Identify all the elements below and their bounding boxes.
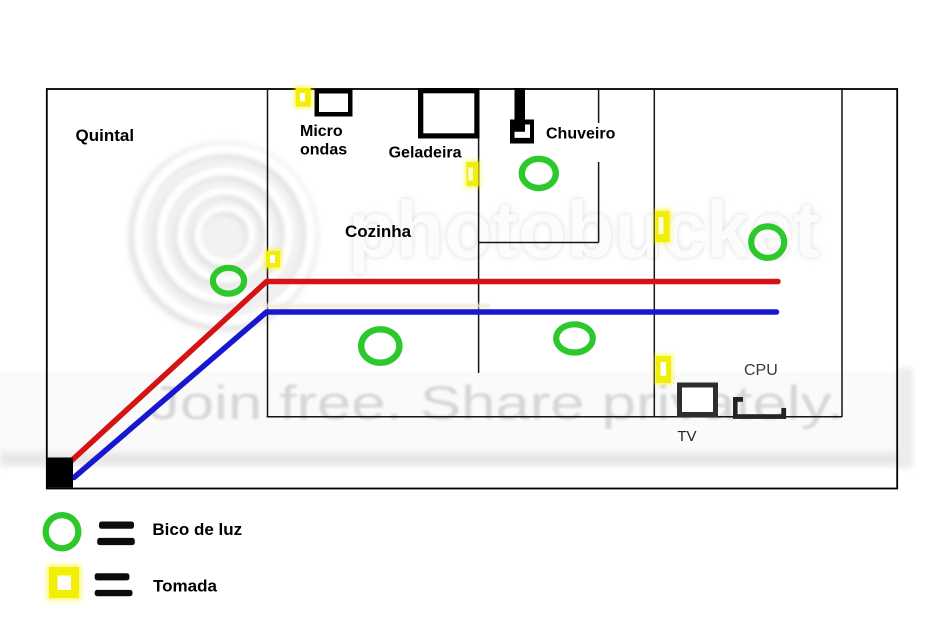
svg-text:Geladeira: Geladeira <box>389 144 462 161</box>
svg-text:photobucket: photobucket <box>348 185 820 274</box>
svg-text:Bico de luz: Bico de luz <box>152 520 242 539</box>
svg-text:Tomada: Tomada <box>153 577 217 596</box>
svg-text:Micro: Micro <box>300 123 343 140</box>
svg-text:Cozinha: Cozinha <box>345 222 412 241</box>
svg-text:Quintal: Quintal <box>76 126 135 145</box>
svg-text:Chuveiro: Chuveiro <box>546 126 616 143</box>
svg-text:CPU: CPU <box>744 362 778 379</box>
svg-text:TV: TV <box>677 428 696 445</box>
svg-text:Join free. Share privately.: Join free. Share privately. <box>149 376 844 429</box>
svg-text:ondas: ondas <box>300 142 347 159</box>
